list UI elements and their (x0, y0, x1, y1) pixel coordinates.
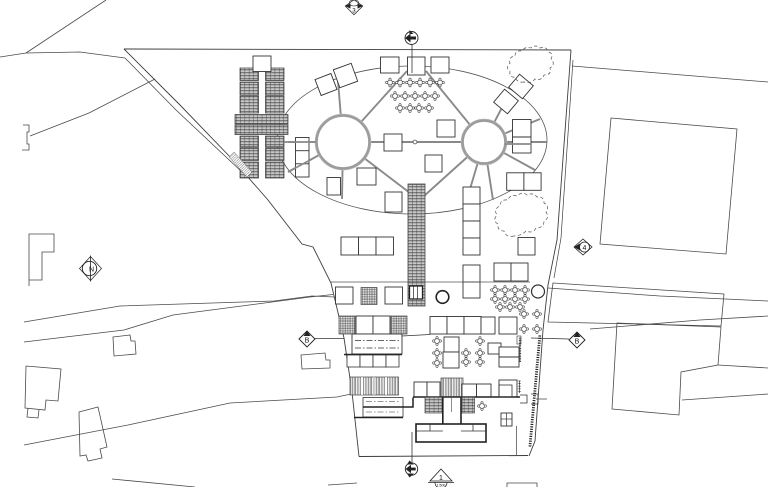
svg-text:1: 1 (439, 475, 443, 482)
svg-text:1:500: 1:500 (437, 484, 446, 487)
svg-text:N: N (89, 266, 94, 273)
svg-text:4: 4 (583, 245, 587, 252)
svg-text:B: B (305, 338, 310, 345)
svg-text:3: 3 (352, 8, 356, 15)
svg-text:B: B (575, 339, 580, 346)
